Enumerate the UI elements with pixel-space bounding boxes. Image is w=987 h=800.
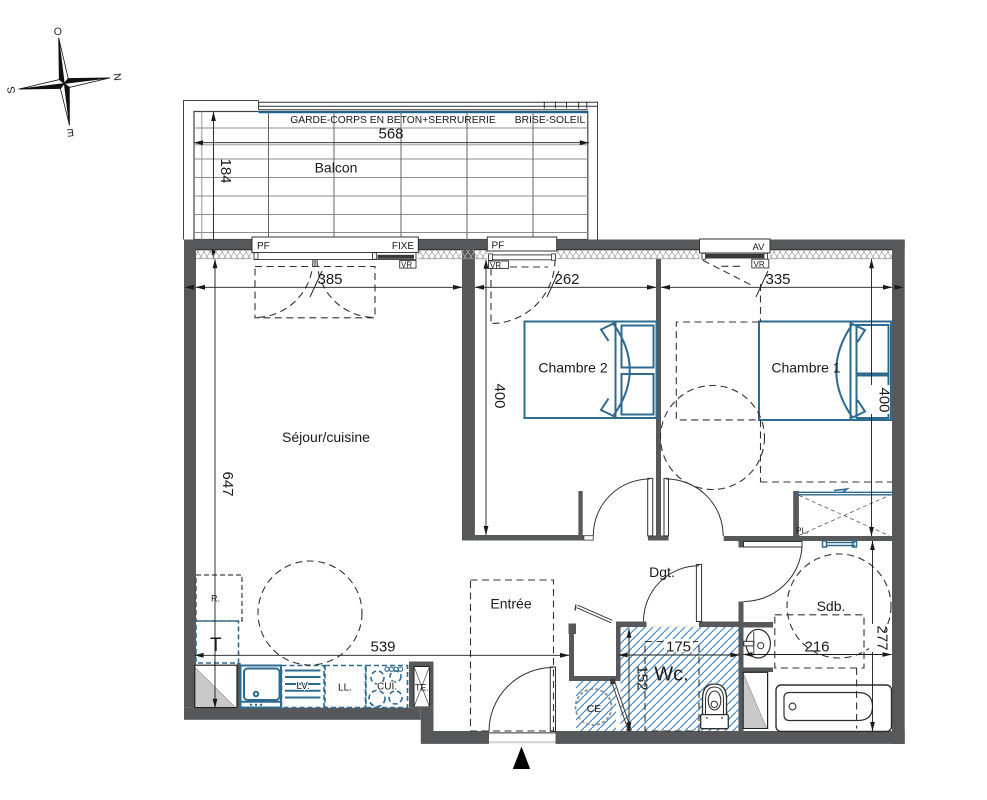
svg-text:VR: VR <box>401 261 412 270</box>
svg-text:R.: R. <box>211 594 220 604</box>
svg-text:Séjour/cuisine: Séjour/cuisine <box>282 429 370 445</box>
svg-text:N: N <box>110 73 123 82</box>
svg-text:AV: AV <box>753 242 766 253</box>
svg-text:277: 277 <box>874 625 891 650</box>
svg-text:LV.: LV. <box>296 681 309 692</box>
svg-text:S: S <box>5 86 18 94</box>
svg-text:E: E <box>66 126 74 139</box>
svg-text:FIXE: FIXE <box>392 241 415 252</box>
svg-text:Entrée: Entrée <box>490 596 531 612</box>
svg-text:PF: PF <box>492 241 505 252</box>
svg-text:LL.: LL. <box>338 683 352 694</box>
svg-text:647: 647 <box>219 471 236 496</box>
svg-text:184: 184 <box>217 158 234 183</box>
svg-text:Dgt.: Dgt. <box>649 564 675 580</box>
svg-text:Chambre 1: Chambre 1 <box>771 360 840 376</box>
svg-text:T: T <box>210 635 222 656</box>
svg-text:216: 216 <box>804 639 829 656</box>
svg-text:400: 400 <box>876 387 893 412</box>
svg-text:CUI.: CUI. <box>377 682 397 693</box>
svg-text:385: 385 <box>317 271 342 288</box>
svg-text:Wc.: Wc. <box>654 664 688 686</box>
svg-text:O: O <box>53 25 63 38</box>
svg-text:CE: CE <box>587 703 602 715</box>
svg-text:400: 400 <box>491 383 508 408</box>
svg-text:PL.: PL. <box>796 526 809 536</box>
svg-text:175: 175 <box>666 639 691 656</box>
svg-text:VR: VR <box>490 261 501 270</box>
svg-text:VR: VR <box>754 260 765 269</box>
svg-text:539: 539 <box>370 639 395 656</box>
svg-text:152: 152 <box>634 665 651 690</box>
svg-text:PF: PF <box>257 241 270 252</box>
svg-text:Balcon: Balcon <box>315 160 358 176</box>
svg-text:335: 335 <box>765 271 790 288</box>
svg-text:Chambre 2: Chambre 2 <box>538 360 607 376</box>
svg-text:262: 262 <box>554 271 579 288</box>
svg-text:TE.: TE. <box>415 683 429 693</box>
svg-text:568: 568 <box>378 126 403 143</box>
svg-text:BRISE-SOLEIL: BRISE-SOLEIL <box>515 115 586 126</box>
svg-text:Sdb.: Sdb. <box>817 598 846 614</box>
svg-text:GARDE-CORPS EN BETON+SERRURERI: GARDE-CORPS EN BETON+SERRURERIE <box>290 115 496 126</box>
